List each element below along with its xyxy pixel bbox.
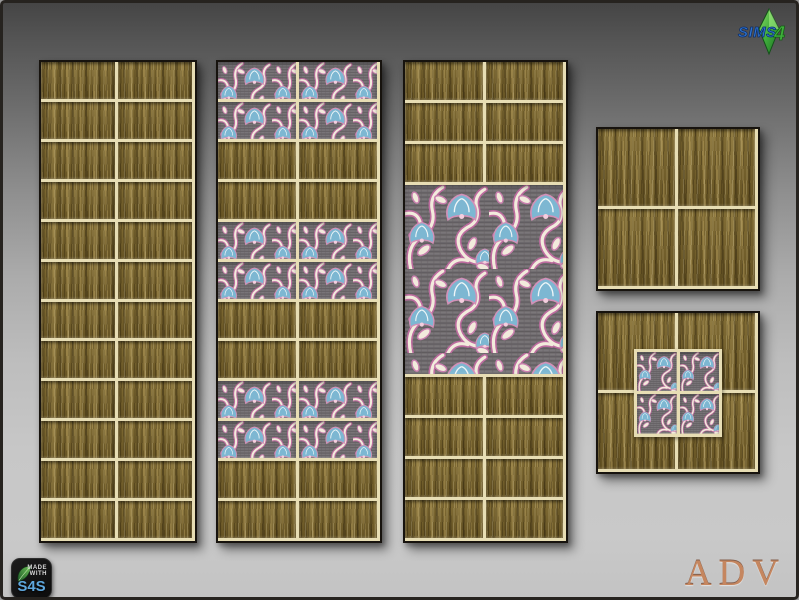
floral-tile bbox=[299, 102, 377, 139]
floral-tile bbox=[218, 381, 296, 418]
tile-row bbox=[218, 421, 377, 458]
tile-row bbox=[41, 102, 192, 139]
floral-tile bbox=[299, 381, 377, 418]
tile-row bbox=[41, 262, 192, 299]
gold-stone-tile bbox=[41, 381, 115, 418]
gold-stone-tile bbox=[299, 461, 377, 498]
tile-row bbox=[41, 421, 192, 458]
gold-stone-tile bbox=[118, 142, 192, 179]
made-with-s4s-badge: MADE WITH S4S bbox=[11, 558, 52, 599]
tile-row bbox=[41, 381, 192, 418]
tile-row bbox=[405, 62, 563, 100]
sims-logo-number: 4 bbox=[773, 23, 785, 45]
floral-tile bbox=[218, 62, 296, 99]
showcase-canvas: SIMS 4 MADE WITH S4S ADV bbox=[0, 0, 799, 600]
gold-stone-tile bbox=[678, 209, 755, 286]
creator-watermark: ADV bbox=[685, 552, 786, 595]
gold-stone-tile bbox=[218, 461, 296, 498]
tile-row bbox=[405, 185, 563, 375]
plumbob-icon: SIMS 4 bbox=[737, 8, 789, 56]
gold-stone-tile bbox=[299, 341, 377, 378]
tall-floral-stripe-panel bbox=[216, 60, 382, 543]
tile-row bbox=[218, 102, 377, 139]
sims4-logo: SIMS 4 bbox=[737, 8, 789, 56]
gold-stone-tile bbox=[299, 182, 377, 219]
floral-tile bbox=[218, 102, 296, 139]
gold-stone-tile bbox=[405, 500, 483, 538]
gold-stone-tile bbox=[118, 461, 192, 498]
tile-row bbox=[41, 461, 192, 498]
tile-row bbox=[218, 142, 377, 179]
gold-stone-tile bbox=[405, 418, 483, 456]
gold-stone-tile bbox=[299, 501, 377, 538]
floral-tile bbox=[299, 62, 377, 99]
floral-tile bbox=[680, 394, 720, 434]
gold-stone-tile bbox=[218, 501, 296, 538]
gold-stone-tile bbox=[405, 62, 483, 100]
gold-stone-tile bbox=[41, 302, 115, 339]
tile-row bbox=[218, 341, 377, 378]
floral-inset bbox=[634, 349, 722, 437]
gold-stone-tile bbox=[118, 381, 192, 418]
tile-row bbox=[218, 461, 377, 498]
tile-row bbox=[218, 222, 377, 259]
sims-logo-word: SIMS bbox=[738, 24, 777, 41]
gold-stone-tile bbox=[41, 461, 115, 498]
gold-stone-tile bbox=[118, 222, 192, 259]
tile-row bbox=[41, 222, 192, 259]
gold-stone-tile bbox=[299, 302, 377, 339]
floral-mural-tile bbox=[405, 185, 563, 375]
gold-stone-tile bbox=[118, 302, 192, 339]
tile-row bbox=[218, 302, 377, 339]
tile-row bbox=[41, 182, 192, 219]
gold-stone-tile bbox=[486, 103, 564, 141]
gold-stone-tile bbox=[118, 421, 192, 458]
gold-stone-tile bbox=[405, 459, 483, 497]
gold-stone-tile bbox=[41, 142, 115, 179]
floral-tile bbox=[218, 222, 296, 259]
gold-stone-tile bbox=[41, 421, 115, 458]
gold-stone-tile bbox=[41, 182, 115, 219]
gold-stone-tile bbox=[678, 129, 755, 206]
gold-stone-tile bbox=[118, 341, 192, 378]
gold-stone-tile bbox=[486, 144, 564, 182]
tile-row bbox=[41, 142, 192, 179]
tile-row bbox=[218, 262, 377, 299]
gold-stone-tile bbox=[405, 144, 483, 182]
tile-row bbox=[218, 182, 377, 219]
gold-stone-tile bbox=[486, 500, 564, 538]
gold-stone-tile bbox=[218, 182, 296, 219]
gold-stone-tile bbox=[218, 142, 296, 179]
floral-tile bbox=[637, 352, 677, 392]
gold-stone-tile bbox=[405, 103, 483, 141]
tile-row bbox=[405, 418, 563, 456]
gold-stone-tile bbox=[405, 377, 483, 415]
tile-row bbox=[405, 144, 563, 182]
gold-stone-tile bbox=[41, 262, 115, 299]
gold-stone-tile bbox=[118, 262, 192, 299]
tall-gold-mural-panel bbox=[403, 60, 568, 543]
tile-row bbox=[218, 501, 377, 538]
floral-tile bbox=[637, 394, 677, 434]
tile-row bbox=[405, 459, 563, 497]
tile-row bbox=[41, 341, 192, 378]
gold-stone-tile bbox=[41, 501, 115, 538]
floral-tile bbox=[299, 421, 377, 458]
tile-row bbox=[41, 501, 192, 538]
floral-tile bbox=[680, 352, 720, 392]
gold-stone-tile bbox=[486, 377, 564, 415]
gold-stone-tile bbox=[218, 302, 296, 339]
gold-stone-tile bbox=[486, 418, 564, 456]
tile-row bbox=[41, 62, 192, 99]
tile-row bbox=[598, 129, 755, 206]
floral-tile bbox=[299, 262, 377, 299]
square-gold-floral-inset-panel bbox=[596, 311, 760, 474]
gold-stone-tile bbox=[218, 341, 296, 378]
tall-gold-panel bbox=[39, 60, 197, 543]
gold-stone-tile bbox=[118, 62, 192, 99]
tile-row bbox=[218, 381, 377, 418]
gold-stone-tile bbox=[118, 501, 192, 538]
made-with-line2: WITH bbox=[27, 571, 47, 577]
gold-stone-tile bbox=[41, 341, 115, 378]
gold-stone-tile bbox=[41, 62, 115, 99]
tile-row bbox=[598, 209, 755, 286]
gold-stone-tile bbox=[118, 102, 192, 139]
tile-row bbox=[405, 500, 563, 538]
gold-stone-tile bbox=[486, 62, 564, 100]
tile-row bbox=[218, 62, 377, 99]
gold-stone-tile bbox=[598, 209, 675, 286]
tile-row bbox=[405, 103, 563, 141]
made-with-text: MADE WITH bbox=[27, 565, 47, 577]
floral-tile bbox=[218, 262, 296, 299]
floral-tile bbox=[299, 222, 377, 259]
gold-stone-tile bbox=[598, 129, 675, 206]
floral-tile bbox=[218, 421, 296, 458]
gold-stone-tile bbox=[41, 222, 115, 259]
square-gold-panel bbox=[596, 127, 760, 291]
s4s-label: S4S bbox=[12, 578, 51, 595]
tile-row bbox=[41, 302, 192, 339]
gold-stone-tile bbox=[299, 142, 377, 179]
gold-stone-tile bbox=[118, 182, 192, 219]
tile-row bbox=[405, 377, 563, 415]
gold-stone-tile bbox=[41, 102, 115, 139]
gold-stone-tile bbox=[486, 459, 564, 497]
